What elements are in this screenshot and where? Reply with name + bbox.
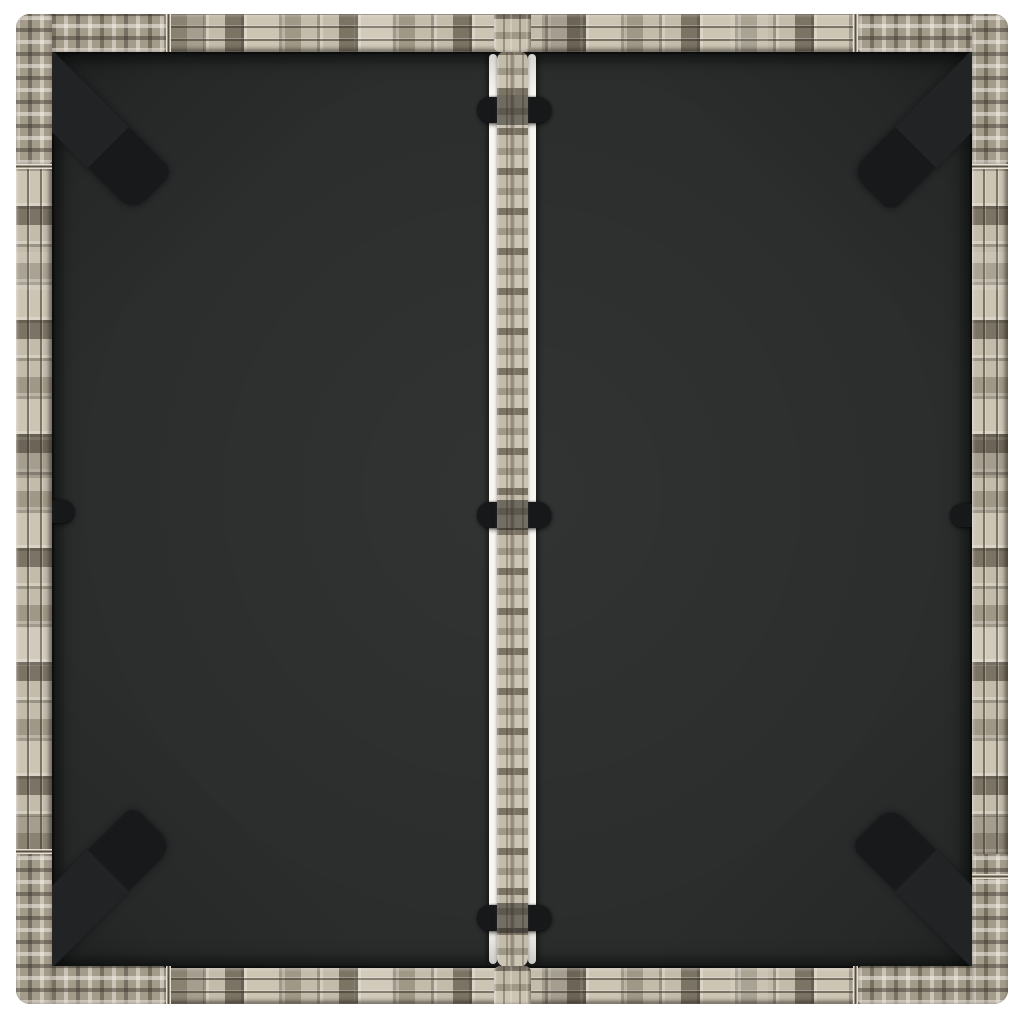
center-rattan-divider-strip <box>497 50 528 968</box>
garden-table-top-view <box>16 14 1008 1004</box>
weave-joint <box>972 164 1008 169</box>
weave-joint <box>16 164 52 169</box>
strip-frame-connector-top <box>494 14 531 52</box>
weave-joint <box>853 966 858 1004</box>
weave-joint <box>853 14 858 52</box>
strip-frame-connector-bottom <box>494 966 531 1004</box>
weave-joint <box>166 14 171 52</box>
corner-piece-top-right-vertical <box>972 14 1008 164</box>
weave-joint <box>16 849 52 854</box>
corner-piece-bottom-left-vertical <box>16 854 52 1004</box>
weave-joint <box>972 874 1008 879</box>
product-photo <box>0 0 1024 1024</box>
weave-joint <box>166 966 171 1004</box>
corner-piece-top-left-vertical <box>16 14 52 164</box>
